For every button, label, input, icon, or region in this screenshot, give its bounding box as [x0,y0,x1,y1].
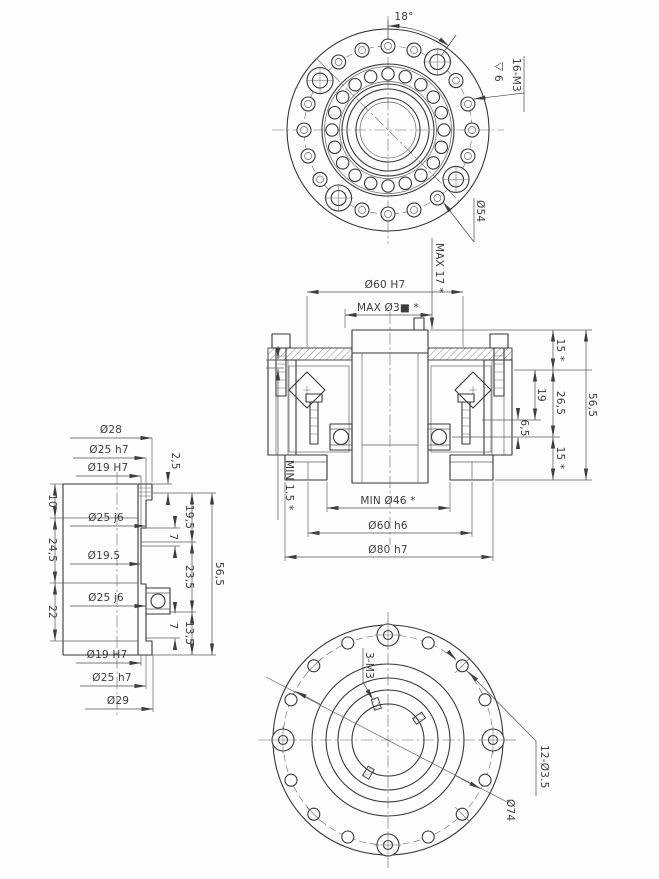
dim-dia-bore-top: Ø19 H7 [88,462,129,474]
pin-stub [414,318,424,330]
dim-dia-fit-top: Ø25 h7 [89,444,129,456]
set-screw-right [458,394,474,444]
dim-max-screw-depth: MAX 17 * [433,243,445,293]
dim-mid-height: 26,5 [554,391,566,415]
clamp-bolt-left [272,334,290,396]
set-screw-left [306,394,322,444]
note-thread-count-bottom: 3-M3 [363,652,375,679]
bottom-view: Ø74 12-Ø3.5 3-M3 [258,612,550,868]
dim-seg-left-3: 22 [46,605,58,619]
dim-outer-dia: Ø80 h7 [368,544,408,556]
dim-seg-right-2: 23,5 [183,565,195,589]
dim-top-height: 15 * [554,339,566,362]
dim-bottom-height: 15 * [554,447,566,470]
dim-total-height-section: 56,5 [586,393,598,417]
clamp-bolt-right [490,334,508,396]
dim-min-hollow-dia: MIN Ø46 * [360,495,415,507]
note-hole-count: 12-Ø3.5 [538,745,550,789]
flange-plate-right [428,348,512,360]
cross-roller-left [289,372,325,408]
side-view: Ø28 Ø25 h7 Ø19 H7 Ø25 j6 Ø19.5 Ø25 j6 Ø1… [46,424,225,718]
dim-dia-mid-1: Ø25 j6 [88,512,124,524]
note-thread-depth: 6 [492,75,504,82]
dim-dia-flange-top: Ø28 [100,424,122,436]
dim-pilot-dia: Ø60 h6 [368,520,408,532]
dim-seg-right-3: 13,5 [183,621,195,645]
dim-step-height: 6,5 [518,419,530,436]
dim-spigot-dia: Ø60 H7 [365,279,406,291]
dim-bearing-width: 19 [535,388,547,402]
drawing-sheet: 18° 16-M3 6 Ø54 [0,0,659,879]
top-view: 18° 16-M3 6 Ø54 [272,11,524,244]
depth-note: 6 [492,62,504,82]
input-bearing [146,588,170,614]
dim-max-center-bore: MAX Ø3■ * [357,302,419,314]
dim-total-height-side: 56,5 [213,562,225,586]
dim-dia-bore-bottom: Ø19 H7 [87,649,128,661]
dim-step-top: 2,5 [169,452,181,469]
dim-dia-flange-bottom: Ø29 [107,695,129,707]
tapped-mark-pattern [363,698,426,780]
section-view: MAX 17 * Ø60 H7 MAX Ø3■ * 15 * 26,5 15 *… [266,238,598,561]
note-thread-count: 16-M3 [510,58,522,92]
dim-bolt-circle-74: Ø74 [504,799,516,821]
dim-hole-angle: 18° [394,11,413,23]
dim-bolt-circle-54: Ø54 [474,200,486,222]
dim-seg-right-1: 19,5 [183,505,195,529]
depth-symbol-icon [496,62,503,71]
dim-dia-mid-3: Ø25 j6 [88,592,124,604]
cross-roller-right [455,372,491,408]
dim-sub-right-1: 7 [167,534,179,541]
dim-dia-fit-bottom: Ø25 h7 [92,672,132,684]
dim-seg-left-2: 24,5 [46,538,58,562]
dim-sub-right-2: 7 [167,623,179,630]
flange-plate-left [268,348,352,360]
dim-dia-mid-2: Ø19.5 [88,550,121,562]
dim-seg-left-1: 10 [46,494,58,508]
technical-drawing: 18° 16-M3 6 Ø54 [0,0,659,879]
